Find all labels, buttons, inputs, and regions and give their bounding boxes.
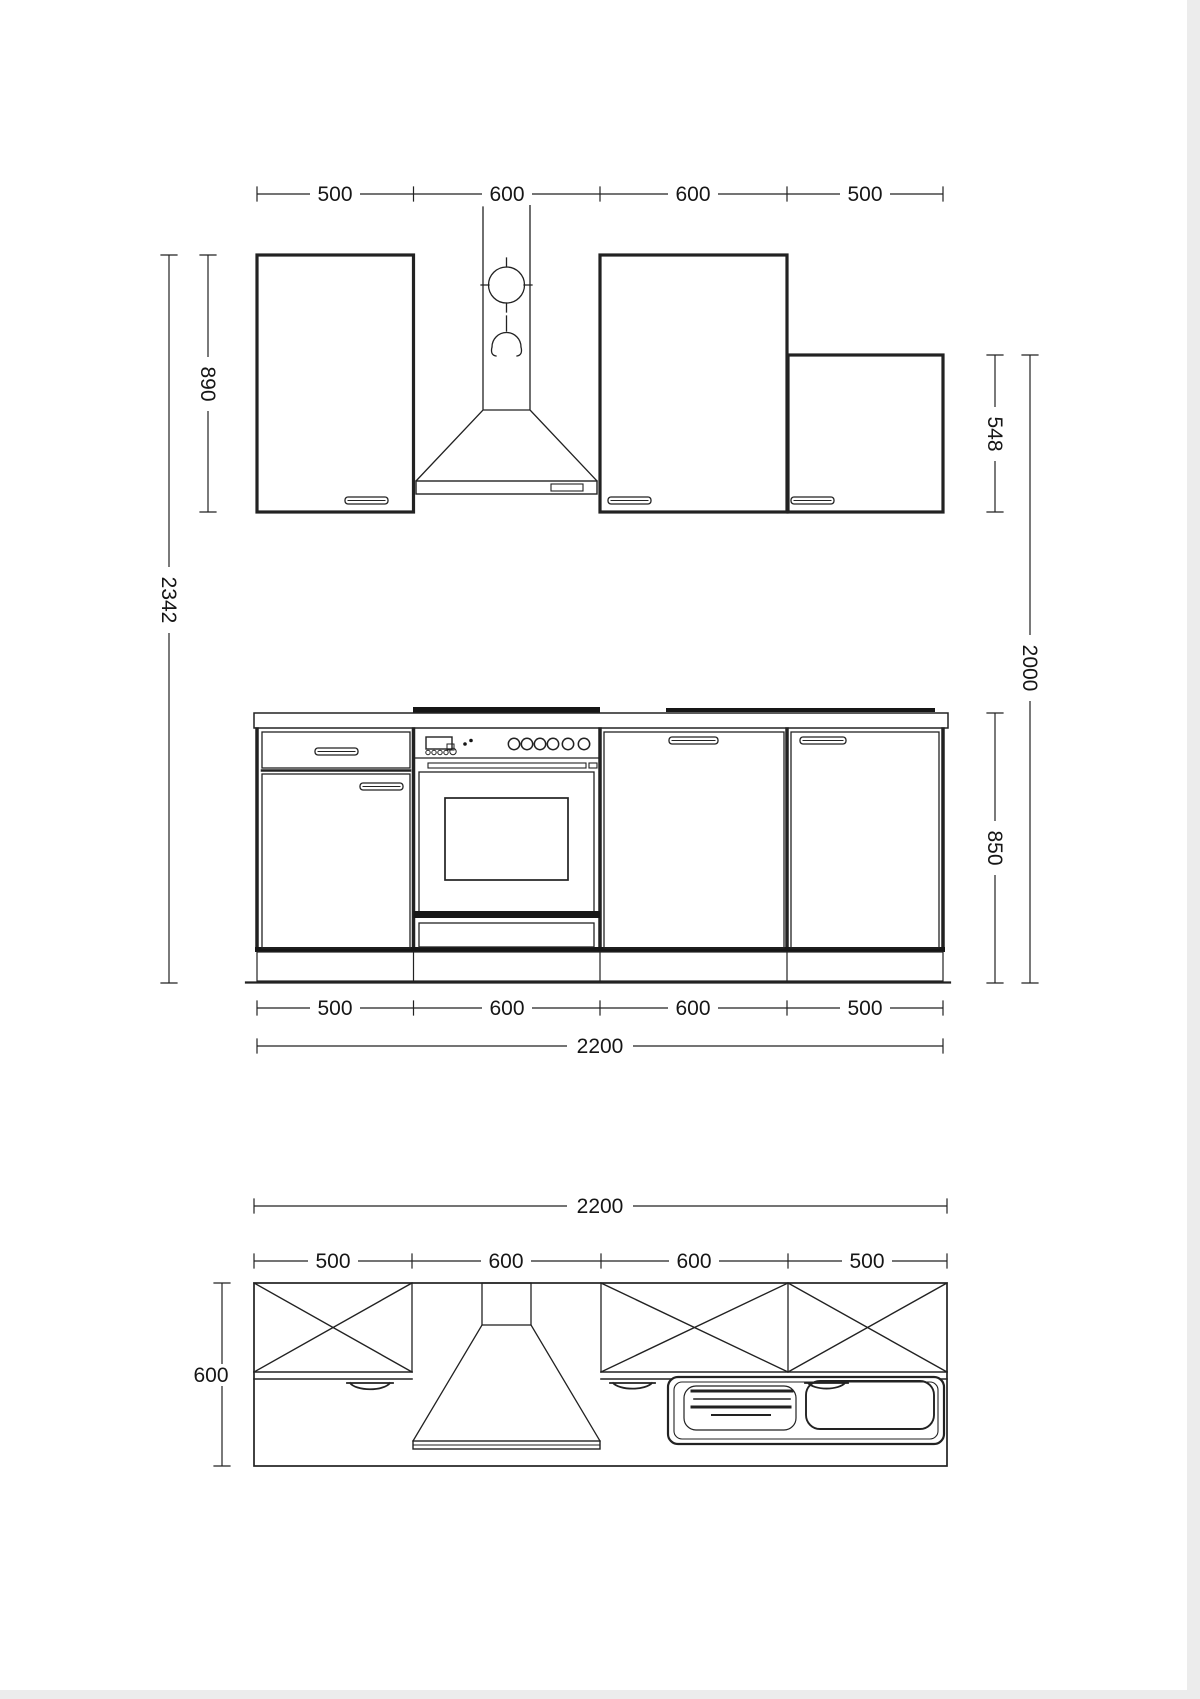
handle-icon	[347, 1383, 393, 1389]
base-elevation-view	[246, 707, 950, 983]
worktop	[254, 713, 948, 728]
hood-duct-plan	[482, 1283, 531, 1325]
dim-label-upper-right-height: 2000	[1018, 645, 1041, 692]
plinth	[246, 952, 950, 983]
door-front	[791, 732, 939, 948]
wall-cabinets-plan	[254, 1283, 947, 1379]
oven-unit	[414, 737, 601, 947]
dim-label: 600	[488, 1250, 523, 1273]
dim-label-base-height: 850	[983, 830, 1006, 865]
dim-label-short-cabinet-height: 548	[983, 416, 1006, 451]
oven-knobs	[508, 738, 589, 749]
kitchen-technical-drawing-page: 500 600 600 500 890 2342 548 2000 850 50…	[0, 0, 1200, 1699]
door-front	[262, 774, 410, 948]
base-unit-middle	[604, 732, 784, 948]
drawer-front	[262, 732, 410, 768]
page-edge-right	[1187, 0, 1200, 1699]
dim-label: 500	[847, 183, 882, 206]
oven-control-panel	[426, 737, 590, 755]
base-unit-right	[791, 732, 939, 948]
handle-icon	[610, 1383, 655, 1389]
dim-label-plan-depth: 600	[193, 1364, 228, 1387]
plan-view	[254, 1283, 947, 1466]
wall-cabinet-left	[257, 255, 414, 512]
page-edge-bottom	[0, 1690, 1200, 1699]
dim-label-run-width: 2200	[577, 1035, 624, 1058]
dim-label: 500	[849, 1250, 884, 1273]
dim-label: 600	[489, 183, 524, 206]
dim-label: 500	[317, 183, 352, 206]
oven-bottom-drawer	[419, 923, 594, 947]
dim-label-total-height: 2342	[157, 577, 180, 624]
dim-label: 600	[675, 997, 710, 1020]
hob-edge	[413, 707, 600, 713]
dim-label: 600	[676, 1250, 711, 1273]
wall-cabinet-handles	[345, 497, 834, 504]
wall-cabinet-short-right	[788, 355, 943, 512]
fan-symbol-icon	[481, 258, 532, 312]
dim-label-wall-cabinet-height: 890	[196, 366, 219, 401]
dim-label: 500	[315, 1250, 350, 1273]
upper-elevation-view	[257, 204, 943, 512]
dim-label: 500	[847, 997, 882, 1020]
hood-base	[416, 481, 597, 494]
oven-window	[445, 798, 568, 880]
oven-display	[426, 737, 452, 749]
sink-top-edge	[666, 708, 935, 712]
cooker-hood	[416, 204, 597, 494]
wall-cabinet-middle	[600, 255, 787, 512]
dim-label-plan-run-width: 2200	[577, 1195, 624, 1218]
hood-control-panel	[551, 484, 583, 491]
oven-vent-slot	[428, 763, 586, 768]
base-unit-left	[262, 732, 410, 948]
door-front	[604, 732, 784, 948]
cooker-hood-plan	[413, 1283, 600, 1449]
kitchen-technical-drawing: 500 600 600 500 890 2342 548 2000 850 50…	[0, 0, 1200, 1699]
dim-label: 600	[675, 183, 710, 206]
vent-symbol-icon	[492, 316, 522, 356]
dim-label: 600	[489, 997, 524, 1020]
dim-label: 500	[317, 997, 352, 1020]
sink-plan	[668, 1377, 944, 1444]
